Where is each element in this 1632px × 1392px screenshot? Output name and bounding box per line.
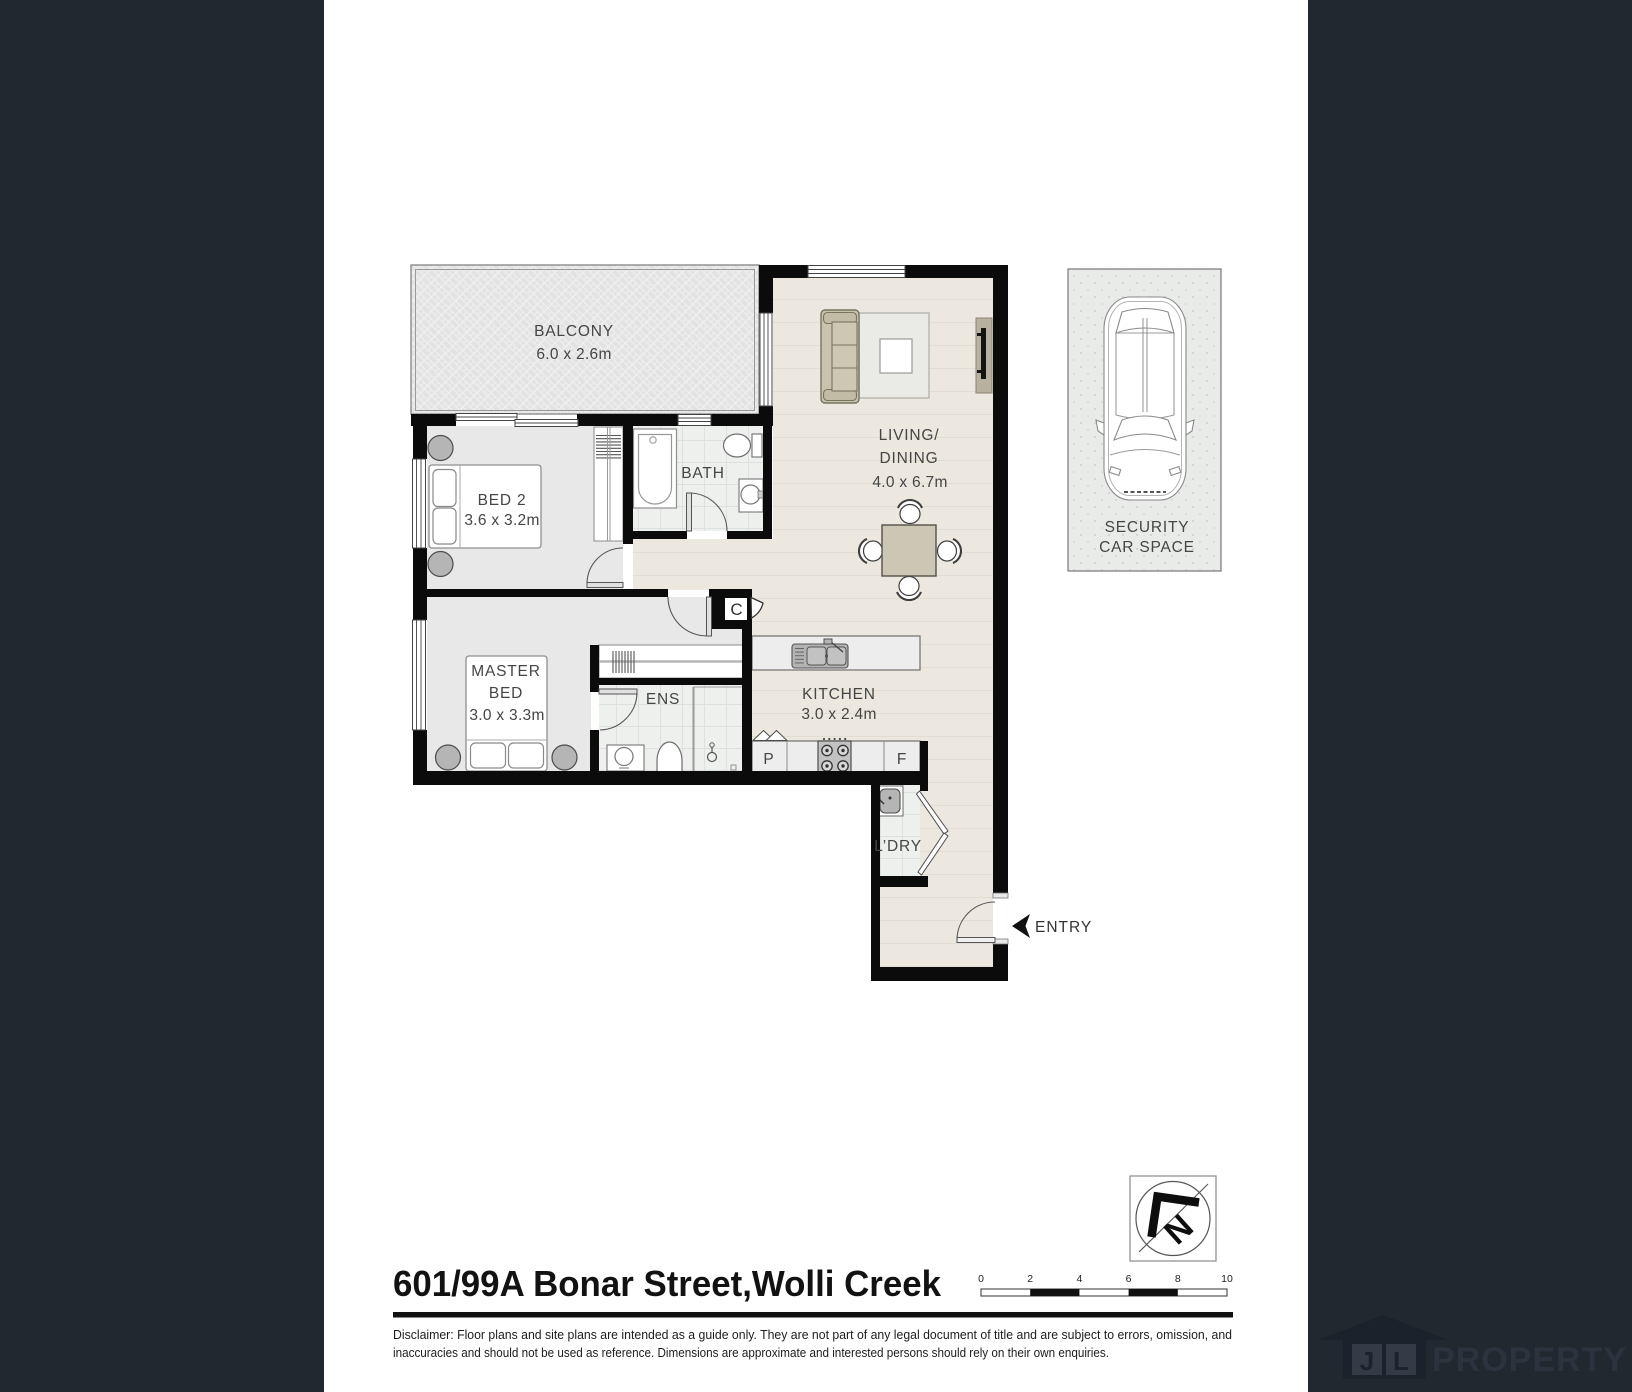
svg-text:0: 0 (978, 1273, 984, 1285)
svg-text:P: P (763, 751, 774, 768)
svg-text:ENTRY: ENTRY (1035, 919, 1092, 936)
svg-text:8: 8 (1175, 1273, 1181, 1285)
svg-text:601/99A Bonar Street,Wolli Cre: 601/99A Bonar Street,Wolli Creek (393, 1263, 942, 1304)
svg-text:BALCONY: BALCONY (534, 323, 614, 340)
svg-text:C: C (730, 600, 742, 619)
svg-text:BED: BED (489, 685, 523, 702)
svg-text:Disclaimer: Floor plans and si: Disclaimer: Floor plans and site plans a… (393, 1327, 1232, 1342)
svg-text:2: 2 (1027, 1273, 1033, 1285)
svg-text:L’DRY: L’DRY (874, 838, 922, 855)
svg-text:inaccuracies and should not be: inaccuracies and should not be used as r… (393, 1345, 1109, 1360)
svg-text:SECURITY: SECURITY (1105, 519, 1190, 536)
svg-text:LIVING/: LIVING/ (879, 427, 940, 444)
svg-text:MASTER: MASTER (471, 663, 540, 680)
svg-text:CAR SPACE: CAR SPACE (1099, 539, 1195, 556)
svg-text:BED 2: BED 2 (478, 492, 527, 509)
svg-text:3.0 x 3.3m: 3.0 x 3.3m (469, 707, 544, 724)
svg-text:ENS: ENS (646, 691, 680, 708)
svg-text:DINING: DINING (879, 450, 938, 467)
svg-text:4: 4 (1076, 1273, 1082, 1285)
svg-text:6: 6 (1126, 1273, 1132, 1285)
svg-text:F: F (897, 751, 907, 768)
svg-text:3.6 x 3.2m: 3.6 x 3.2m (464, 512, 539, 529)
svg-text:PROPERTY: PROPERTY (1432, 1341, 1627, 1379)
svg-text:BATH: BATH (681, 465, 724, 482)
svg-text:10: 10 (1221, 1273, 1233, 1285)
svg-text:L: L (1393, 1346, 1409, 1376)
svg-text:J: J (1360, 1346, 1374, 1376)
svg-text:3.0 x 2.4m: 3.0 x 2.4m (801, 706, 876, 723)
svg-text:6.0 x 2.6m: 6.0 x 2.6m (536, 346, 611, 363)
svg-text:KITCHEN: KITCHEN (802, 686, 876, 703)
svg-text:4.0 x 6.7m: 4.0 x 6.7m (872, 474, 947, 491)
